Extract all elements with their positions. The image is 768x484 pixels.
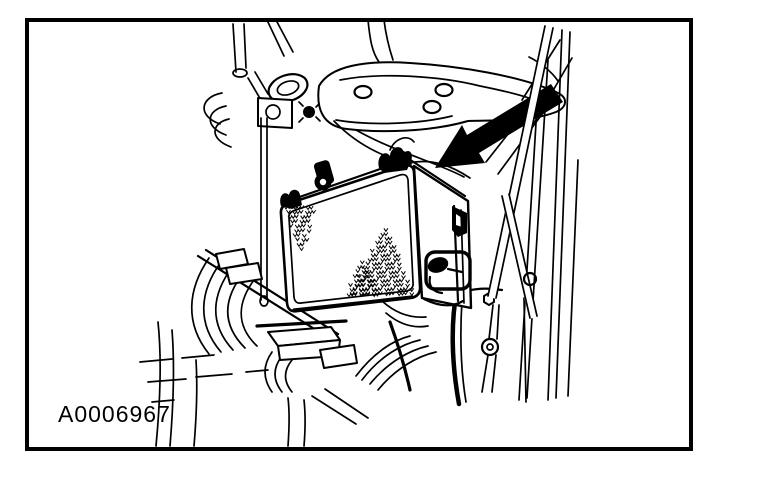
technical-illustration: A0006967	[0, 0, 768, 484]
figure-page: A0006967	[0, 0, 768, 484]
line-art-path	[226, 263, 262, 284]
line-art-path	[320, 345, 357, 368]
knurled-bolt	[303, 106, 315, 118]
line-art-path	[320, 179, 326, 185]
line-art-path	[258, 98, 292, 128]
figure-label: A0006967	[58, 401, 171, 427]
